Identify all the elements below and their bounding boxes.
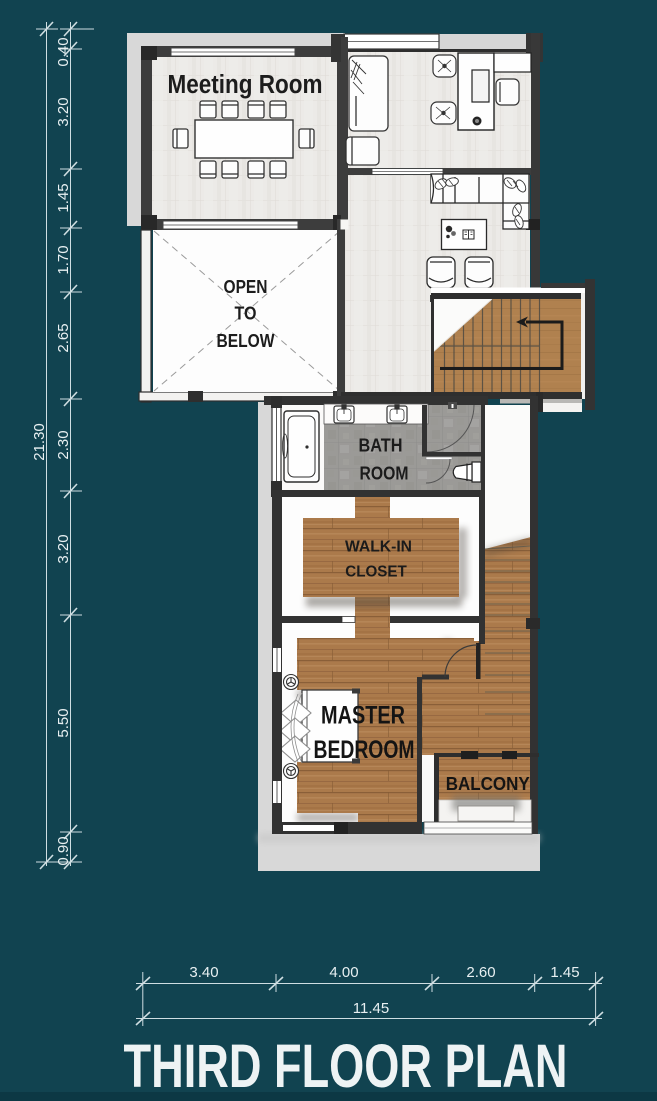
svg-text:Meeting Room: Meeting Room — [168, 71, 323, 99]
svg-text:11.45: 11.45 — [353, 1000, 389, 1017]
svg-text:1.45: 1.45 — [550, 964, 579, 981]
svg-text:2.60: 2.60 — [466, 964, 495, 981]
svg-text:OPEN: OPEN — [224, 277, 268, 297]
svg-text:WALK-IN: WALK-IN — [345, 539, 412, 556]
svg-text:ROOM: ROOM — [360, 463, 409, 484]
svg-text:CLOSET: CLOSET — [345, 564, 407, 581]
svg-text:BALCONY: BALCONY — [446, 774, 530, 794]
svg-text:BEDROOM: BEDROOM — [314, 736, 415, 764]
svg-text:5.50: 5.50 — [55, 708, 72, 737]
svg-text:1.45: 1.45 — [55, 183, 72, 212]
svg-text:THIRD FLOOR PLAN: THIRD FLOOR PLAN — [124, 1032, 568, 1100]
svg-text:21.30: 21.30 — [31, 423, 48, 461]
svg-text:3.40: 3.40 — [189, 964, 218, 981]
svg-text:BATH: BATH — [359, 435, 403, 456]
svg-text:BELOW: BELOW — [217, 331, 275, 351]
svg-text:MASTER: MASTER — [321, 702, 405, 730]
svg-text:2.65: 2.65 — [55, 323, 72, 352]
svg-text:0.40: 0.40 — [55, 37, 72, 66]
svg-text:1.70: 1.70 — [55, 245, 72, 274]
svg-text:3.20: 3.20 — [55, 97, 72, 126]
svg-text:4.00: 4.00 — [329, 964, 358, 981]
svg-text:2.30: 2.30 — [55, 430, 72, 459]
svg-text:3.20: 3.20 — [55, 534, 72, 563]
svg-text:TO: TO — [235, 304, 257, 324]
svg-text:0.90: 0.90 — [55, 836, 72, 865]
